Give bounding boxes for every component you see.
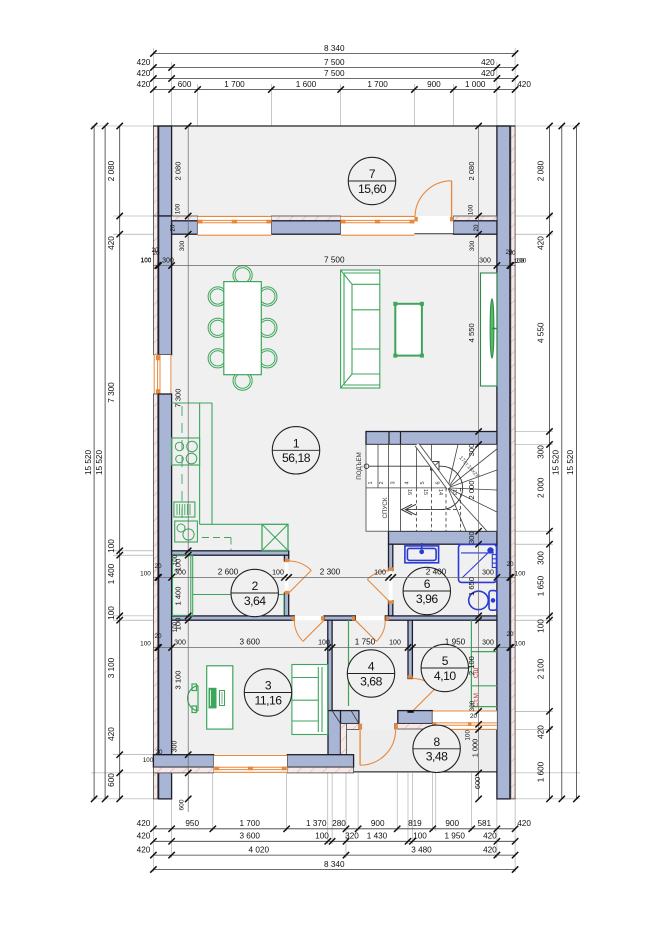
svg-text:2 080: 2 080: [467, 161, 476, 180]
svg-text:3,64: 3,64: [244, 594, 266, 608]
svg-text:3 100: 3 100: [174, 670, 183, 689]
svg-text:7 300: 7 300: [174, 388, 183, 407]
svg-text:5: 5: [442, 654, 449, 668]
svg-text:20: 20: [473, 224, 480, 231]
svg-text:2 080: 2 080: [537, 160, 546, 181]
svg-text:4 550: 4 550: [467, 323, 476, 342]
svg-text:300: 300: [467, 531, 476, 544]
svg-text:420: 420: [481, 69, 495, 78]
svg-text:1 600: 1 600: [296, 80, 317, 89]
svg-text:1 750: 1 750: [355, 638, 376, 647]
svg-text:1 950: 1 950: [444, 832, 465, 841]
svg-text:420: 420: [107, 236, 116, 250]
svg-text:4,10: 4,10: [434, 669, 456, 683]
svg-text:300: 300: [482, 640, 494, 647]
svg-text:20: 20: [154, 563, 162, 570]
svg-text:2 080: 2 080: [174, 161, 183, 180]
svg-text:20: 20: [505, 249, 513, 256]
svg-text:100: 100: [172, 621, 179, 632]
svg-text:4 550: 4 550: [537, 322, 546, 343]
svg-text:15 520: 15 520: [95, 450, 104, 475]
svg-text:3 600: 3 600: [239, 638, 260, 647]
svg-text:300: 300: [467, 444, 476, 457]
svg-text:3: 3: [391, 481, 397, 484]
svg-text:300: 300: [479, 258, 491, 265]
svg-text:4: 4: [405, 481, 411, 484]
svg-text:100: 100: [140, 641, 151, 648]
svg-text:300: 300: [162, 258, 174, 265]
svg-text:1 700: 1 700: [239, 819, 260, 828]
svg-text:2: 2: [379, 481, 385, 484]
svg-text:2 000: 2 000: [537, 477, 546, 498]
svg-text:7 500: 7 500: [324, 58, 345, 67]
svg-text:8 340: 8 340: [324, 860, 345, 869]
svg-text:420: 420: [483, 832, 497, 841]
svg-text:56,18: 56,18: [282, 451, 311, 465]
svg-text:950: 950: [185, 819, 199, 828]
svg-text:420: 420: [107, 727, 116, 741]
svg-text:1 000: 1 000: [465, 80, 486, 89]
svg-text:900: 900: [371, 819, 385, 828]
svg-text:300: 300: [179, 240, 186, 251]
svg-text:420: 420: [137, 819, 151, 828]
svg-text:420: 420: [137, 58, 151, 67]
svg-text:3: 3: [265, 679, 272, 693]
svg-text:420: 420: [137, 846, 151, 855]
svg-text:100: 100: [107, 606, 116, 620]
svg-text:1 600: 1 600: [537, 761, 546, 782]
svg-text:300: 300: [469, 240, 476, 251]
svg-text:420: 420: [517, 819, 531, 828]
svg-text:8: 8: [434, 735, 441, 749]
svg-text:11,16: 11,16: [254, 693, 282, 707]
svg-text:20: 20: [170, 224, 177, 231]
svg-text:2 100: 2 100: [467, 656, 476, 675]
svg-text:СПУСК: СПУСК: [382, 497, 389, 518]
svg-text:420: 420: [517, 80, 531, 89]
svg-text:15: 15: [422, 489, 428, 495]
svg-text:1: 1: [368, 481, 374, 484]
svg-text:100: 100: [107, 539, 116, 553]
svg-text:600: 600: [107, 773, 116, 787]
svg-text:100: 100: [514, 258, 525, 265]
svg-text:2 100: 2 100: [537, 658, 546, 679]
svg-text:600: 600: [178, 80, 192, 89]
svg-text:20: 20: [506, 561, 514, 568]
svg-text:20: 20: [156, 749, 163, 756]
svg-text:1 700: 1 700: [367, 80, 388, 89]
svg-text:100: 100: [468, 204, 475, 215]
svg-text:100: 100: [515, 641, 526, 648]
svg-text:4: 4: [368, 660, 375, 674]
svg-text:900: 900: [427, 80, 441, 89]
svg-text:100: 100: [537, 619, 546, 633]
svg-text:420: 420: [137, 80, 151, 89]
svg-text:7 500: 7 500: [324, 69, 345, 78]
svg-text:20: 20: [154, 633, 162, 640]
svg-text:100: 100: [515, 570, 526, 577]
svg-text:100: 100: [172, 554, 179, 565]
svg-text:3,96: 3,96: [416, 592, 438, 606]
svg-text:15,60: 15,60: [358, 182, 387, 196]
svg-text:300: 300: [172, 741, 179, 753]
svg-text:3,48: 3,48: [426, 750, 448, 764]
svg-text:7: 7: [369, 167, 376, 181]
svg-text:3 100: 3 100: [107, 657, 116, 678]
svg-text:100: 100: [175, 203, 182, 214]
svg-text:4 020: 4 020: [249, 846, 270, 855]
svg-text:300: 300: [537, 551, 546, 565]
svg-text:14: 14: [437, 489, 443, 495]
svg-text:7 500: 7 500: [324, 256, 345, 265]
svg-text:1 400: 1 400: [107, 563, 116, 584]
svg-text:13: 13: [451, 489, 457, 495]
svg-text:300: 300: [174, 640, 186, 647]
svg-text:15 520: 15 520: [566, 450, 575, 475]
svg-text:3 600: 3 600: [239, 832, 260, 841]
svg-text:2 300: 2 300: [320, 567, 341, 576]
svg-text:2 000: 2 000: [467, 480, 476, 499]
svg-text:6: 6: [436, 481, 442, 484]
svg-text:7 300: 7 300: [107, 382, 116, 403]
svg-text:1 430: 1 430: [367, 832, 388, 841]
svg-text:100: 100: [413, 832, 427, 841]
svg-text:2 080: 2 080: [107, 160, 116, 181]
svg-text:2: 2: [252, 579, 259, 593]
svg-text:100: 100: [140, 570, 151, 577]
svg-text:6: 6: [424, 577, 431, 591]
svg-text:3,68: 3,68: [360, 674, 382, 688]
svg-text:1 000: 1 000: [471, 739, 480, 758]
svg-text:600: 600: [473, 777, 482, 789]
svg-text:3 480: 3 480: [411, 846, 432, 855]
svg-text:100: 100: [374, 569, 386, 576]
svg-text:420: 420: [483, 846, 497, 855]
svg-text:280: 280: [332, 819, 346, 828]
svg-text:100: 100: [389, 640, 401, 647]
svg-text:300: 300: [537, 445, 546, 459]
svg-text:581: 581: [477, 819, 491, 828]
svg-text:1 400: 1 400: [174, 586, 183, 605]
svg-text:300: 300: [469, 700, 476, 711]
svg-text:1 950: 1 950: [445, 638, 466, 647]
svg-text:100: 100: [141, 257, 152, 264]
svg-text:1 650: 1 650: [537, 575, 546, 596]
svg-text:16: 16: [406, 489, 412, 495]
svg-text:420: 420: [481, 58, 495, 67]
svg-text:819: 819: [408, 819, 422, 828]
svg-text:5: 5: [420, 481, 426, 484]
svg-text:1 370: 1 370: [306, 819, 327, 828]
svg-text:1 650: 1 650: [467, 577, 476, 596]
svg-text:2 400: 2 400: [426, 567, 447, 576]
svg-text:20: 20: [151, 247, 159, 254]
svg-text:1: 1: [293, 436, 300, 450]
svg-text:15 520: 15 520: [84, 450, 93, 475]
svg-text:100: 100: [318, 640, 330, 647]
svg-text:20: 20: [470, 713, 478, 720]
svg-text:320: 320: [345, 832, 359, 841]
svg-text:100: 100: [272, 569, 284, 576]
svg-text:100: 100: [315, 832, 329, 841]
svg-text:300: 300: [482, 569, 494, 576]
svg-text:1 700: 1 700: [224, 80, 245, 89]
svg-text:ПОДЪЕМ: ПОДЪЕМ: [356, 452, 363, 480]
svg-text:8 340: 8 340: [324, 44, 345, 53]
svg-text:420: 420: [137, 69, 151, 78]
svg-text:2 600: 2 600: [218, 567, 239, 576]
svg-text:900: 900: [445, 819, 459, 828]
svg-text:15 520: 15 520: [552, 450, 561, 475]
svg-text:420: 420: [137, 832, 151, 841]
svg-text:100: 100: [143, 757, 154, 764]
svg-text:420: 420: [537, 725, 546, 739]
svg-text:20: 20: [506, 631, 514, 638]
svg-text:300: 300: [174, 569, 186, 576]
svg-text:600: 600: [179, 799, 186, 810]
svg-text:420: 420: [537, 236, 546, 250]
